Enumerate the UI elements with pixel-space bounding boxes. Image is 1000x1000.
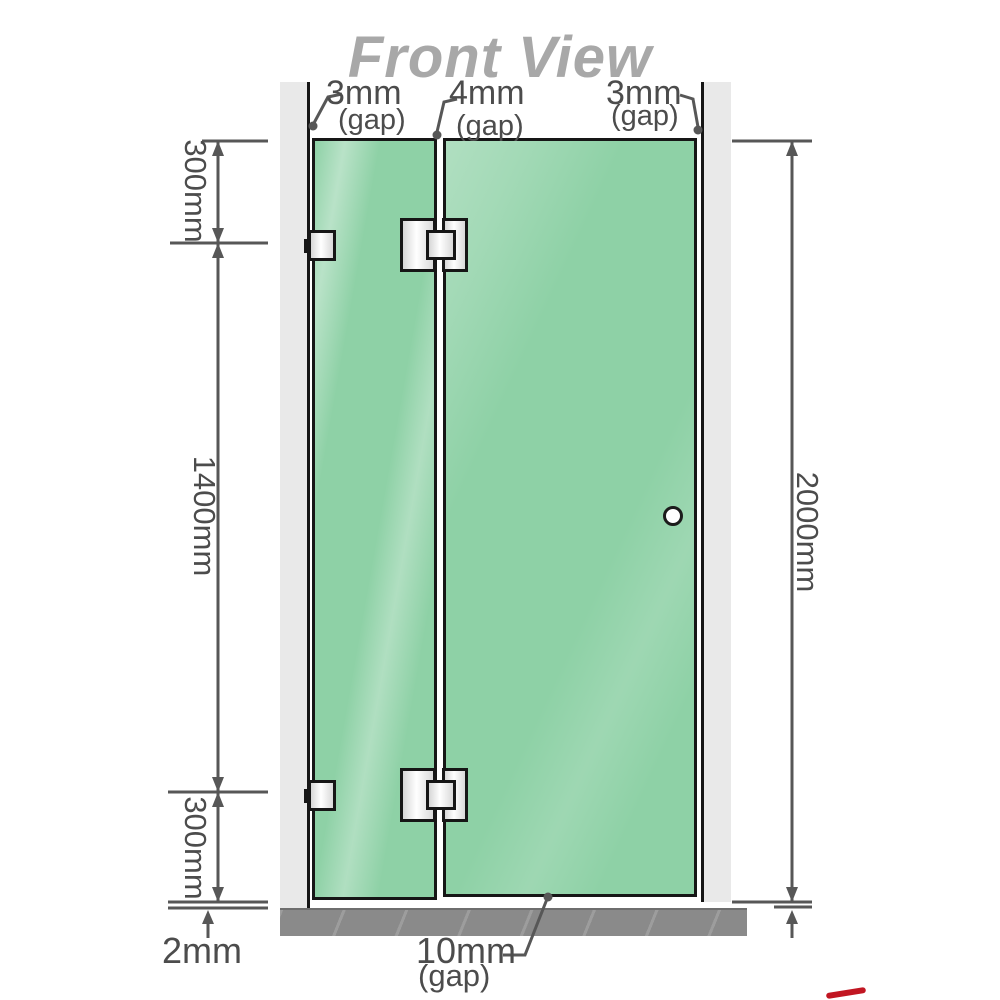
wall-bracket-bottom [308, 780, 336, 811]
hinge-bottom [400, 768, 468, 822]
hinge-top [400, 218, 468, 272]
dim-label-bottom-section: 300mm [177, 796, 213, 899]
left-wall [280, 82, 310, 908]
gap-note-bottom: (gap) [418, 958, 490, 994]
hinge-pivot-tab [426, 230, 456, 260]
dim-label-floor-clearance: 2mm [162, 930, 242, 972]
right-wall [701, 82, 731, 902]
dim-label-middle-section: 1400mm [186, 456, 222, 577]
gap-note-left: (gap) [338, 104, 406, 137]
gap-label-middle: 4mm [449, 74, 525, 113]
dim-label-top-section: 300mm [177, 139, 213, 242]
red-corner-mark [826, 987, 866, 999]
hinge-pivot-tab [426, 780, 456, 810]
dim-label-total-height: 2000mm [789, 472, 825, 593]
door-handle-knob [663, 506, 683, 526]
gap-note-right: (gap) [611, 100, 679, 133]
glass-panel-door [443, 138, 697, 897]
front-view-diagram: Front View [0, 0, 1000, 1000]
wall-bracket-top [308, 230, 336, 261]
gap-note-middle: (gap) [456, 110, 524, 143]
